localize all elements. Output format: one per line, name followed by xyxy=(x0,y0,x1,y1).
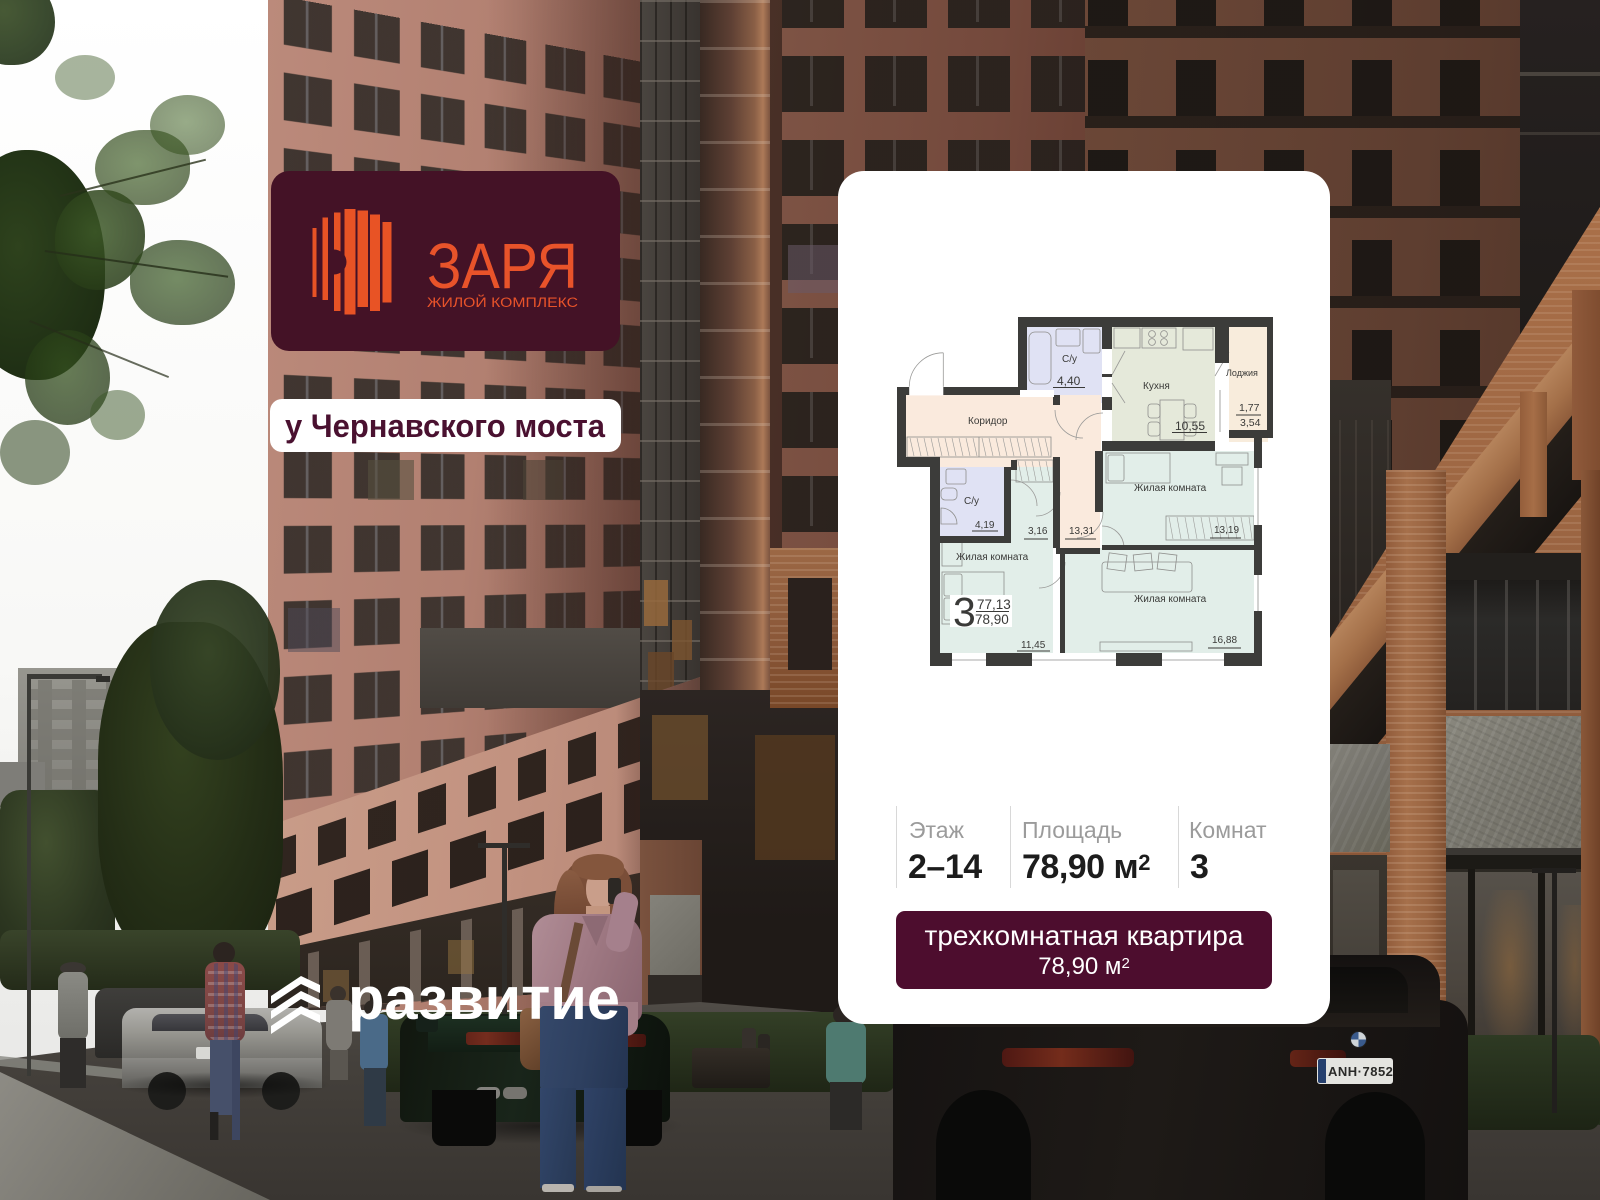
svg-text:Кухня: Кухня xyxy=(1143,381,1170,392)
svg-text:3: 3 xyxy=(953,589,976,635)
svg-text:1,77: 1,77 xyxy=(1239,402,1260,414)
svg-text:78,90: 78,90 xyxy=(975,612,1009,627)
svg-text:Жилая комната: Жилая комната xyxy=(1134,594,1207,605)
svg-text:11,45: 11,45 xyxy=(1021,640,1046,651)
svg-text:77,13: 77,13 xyxy=(977,597,1011,612)
svg-text:4,40: 4,40 xyxy=(1057,374,1081,388)
svg-text:у Чернавского моста: у Чернавского моста xyxy=(285,408,605,444)
svg-text:развитие: развитие xyxy=(348,970,620,1032)
svg-text:13,31: 13,31 xyxy=(1069,526,1094,537)
svg-text:ЖИЛОЙ КОМПЛЕКС: ЖИЛОЙ КОМПЛЕКС xyxy=(427,295,578,310)
svg-text:3,16: 3,16 xyxy=(1028,526,1048,537)
svg-text:С/у: С/у xyxy=(1062,354,1077,365)
svg-text:Жилая комната: Жилая комната xyxy=(1134,483,1207,494)
svg-text:4,19: 4,19 xyxy=(975,520,995,531)
svg-text:10,55: 10,55 xyxy=(1175,419,1205,433)
svg-text:С/у: С/у xyxy=(964,496,979,507)
svg-text:13,19: 13,19 xyxy=(1214,525,1239,536)
svg-text:16,88: 16,88 xyxy=(1212,635,1237,646)
svg-text:3,54: 3,54 xyxy=(1240,417,1261,429)
svg-text:Лоджия: Лоджия xyxy=(1226,368,1258,378)
svg-text:Коридор: Коридор xyxy=(968,416,1008,427)
svg-text:ЗАРЯ: ЗАРЯ xyxy=(427,230,578,302)
svg-text:Жилая комната: Жилая комната xyxy=(956,552,1029,563)
